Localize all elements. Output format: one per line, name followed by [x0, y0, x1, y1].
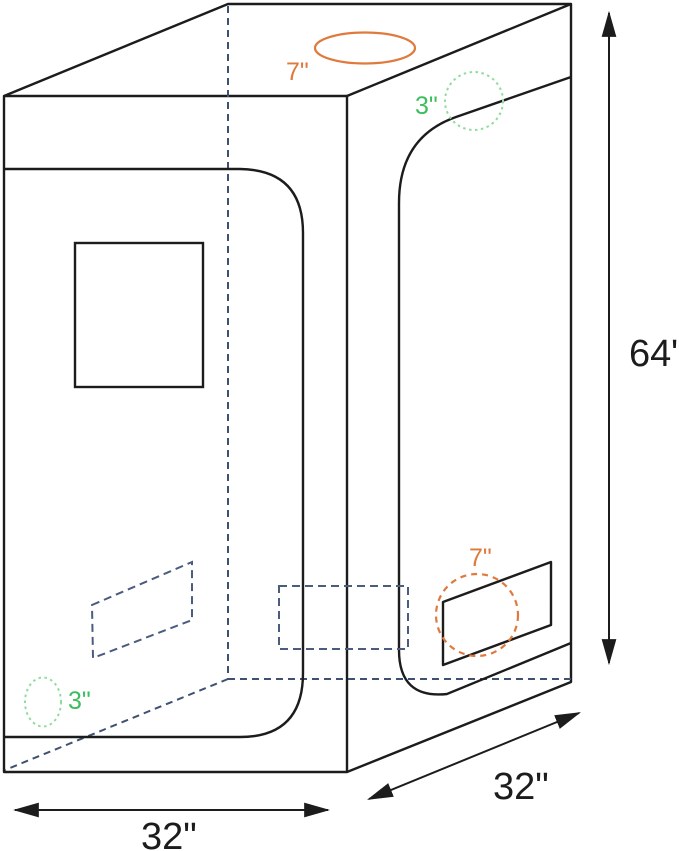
lower-left-vent-dashed	[92, 562, 192, 658]
top-cord-port-dotted	[445, 72, 503, 130]
left-window	[75, 243, 203, 387]
right-door-outline	[399, 77, 571, 694]
side-duct-label: 7"	[469, 544, 492, 572]
depth-dimension-label: 32"	[493, 766, 549, 808]
floor-cord-label: 3"	[68, 687, 91, 715]
top-duct-label: 7"	[286, 58, 309, 86]
side-duct-flange	[443, 562, 551, 665]
height-dimension-label: 64"	[629, 333, 679, 375]
lower-center-vent-dashed	[279, 586, 408, 649]
diagram-drawing: 7" 3" 7" 3" 64" 32" 32"	[0, 0, 679, 851]
floor-cord-port-dotted	[25, 678, 61, 727]
top-duct-hole	[315, 33, 415, 64]
tent-top-right-edge	[347, 4, 571, 96]
top-cord-label: 3"	[415, 92, 438, 120]
side-duct-hole-dashed	[436, 574, 518, 656]
width-dimension-label: 32"	[141, 816, 197, 851]
grow-tent-diagram: 7" 3" 7" 3" 64" 32" 32"	[0, 0, 679, 851]
left-door-outline	[4, 169, 303, 737]
